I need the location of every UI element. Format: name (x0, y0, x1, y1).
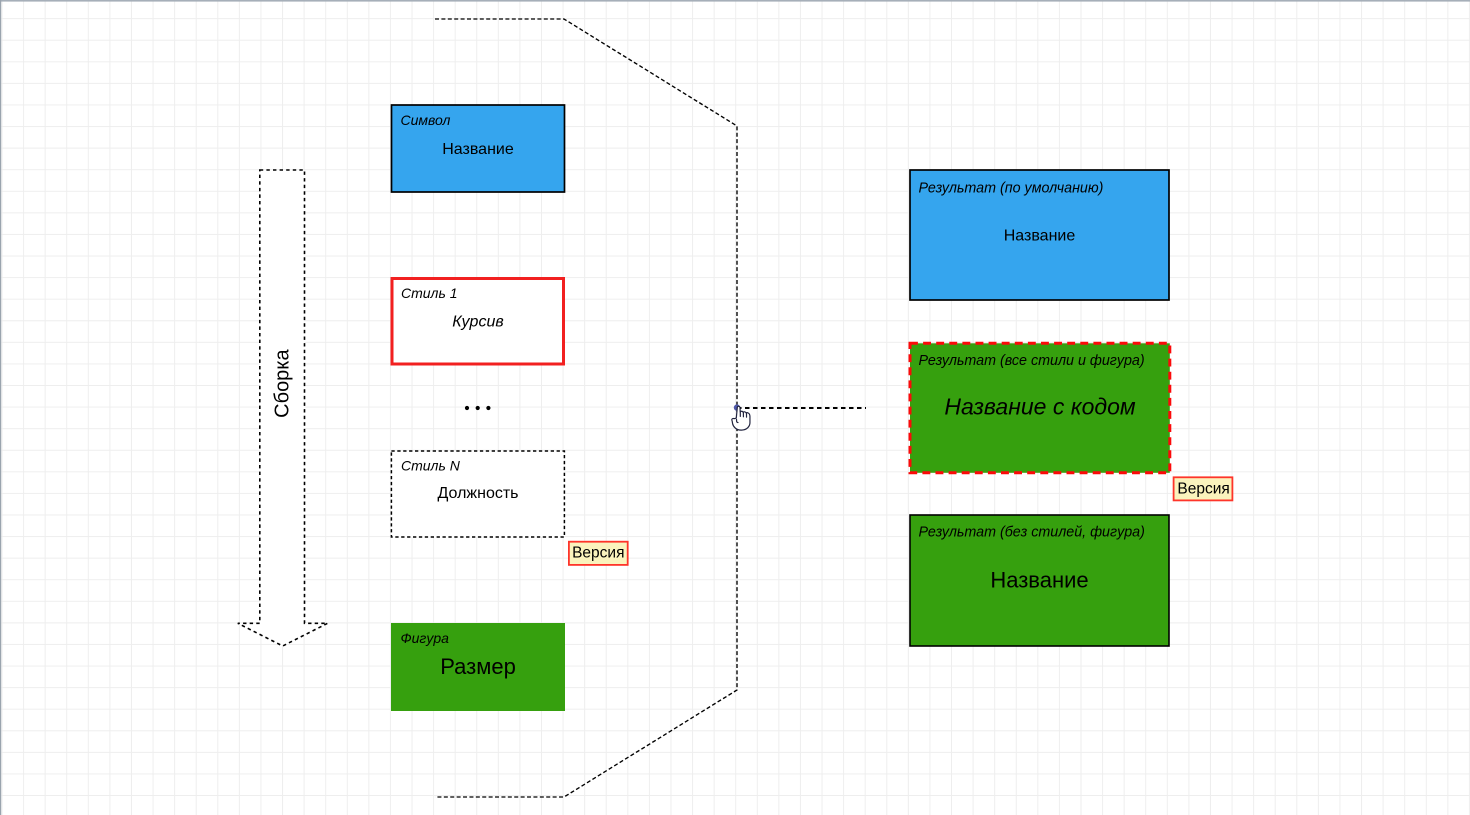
svg-text:Название: Название (990, 568, 1088, 593)
svg-text:Результат (без стилей, фигура): Результат (без стилей, фигура) (919, 525, 1145, 541)
svg-text:Версия: Версия (572, 545, 624, 562)
svg-text:Стиль 1: Стиль 1 (401, 285, 458, 301)
svg-text:Версия: Версия (1177, 481, 1229, 498)
svg-text:Название с кодом: Название с кодом (944, 394, 1136, 420)
svg-text:Сборка: Сборка (272, 349, 294, 418)
svg-text:Фигура: Фигура (401, 630, 450, 646)
svg-text:Название: Название (442, 141, 514, 158)
svg-text:Результат (по умолчанию): Результат (по умолчанию) (919, 181, 1104, 197)
svg-text:Размер: Размер (440, 654, 516, 679)
svg-text:Должность: Должность (438, 485, 519, 502)
svg-text:Стиль N: Стиль N (401, 458, 461, 474)
svg-text:Результат (все стили и фигура): Результат (все стили и фигура) (919, 353, 1145, 369)
svg-text:Символ: Символ (401, 112, 451, 128)
svg-text:Название: Название (1004, 228, 1076, 245)
svg-text:Курсив: Курсив (452, 314, 503, 331)
